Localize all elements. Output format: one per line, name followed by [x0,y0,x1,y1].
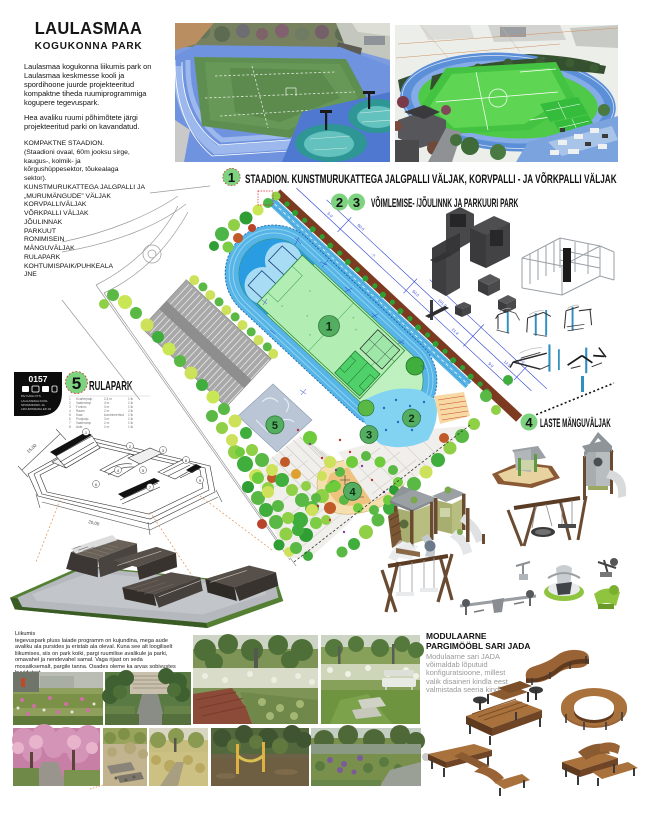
svg-text:2: 2 [408,413,414,425]
svg-text:5: 5 [72,374,81,393]
svg-text:5: 5 [272,420,278,432]
svg-text:1 tk: 1 tk [128,425,134,429]
svg-text:8: 8 [69,425,71,429]
svg-text:5.0: 5.0 [326,211,334,219]
svg-text:1: 1 [228,170,235,185]
svg-text:0157: 0157 [29,374,48,384]
svg-text:21.4: 21.4 [451,327,461,336]
svg-text:3: 3 [353,195,360,210]
svg-text:9.0: 9.0 [487,361,495,369]
svg-text:4: 4 [349,486,356,498]
svg-text:60.0: 60.0 [356,223,366,232]
svg-text:4: 4 [525,415,533,430]
svg-text:Aste: Aste [76,425,83,429]
svg-text:MV KAVA OTS: MV KAVA OTS [21,394,41,398]
svg-text:1: 1 [326,320,333,334]
svg-text:3: 3 [366,430,372,442]
svg-text:20,00: 20,00 [88,519,101,527]
svg-text:2 m: 2 m [104,425,110,429]
svg-text:2: 2 [336,195,343,210]
svg-text:LIIKUMISRADA EP-02: LIIKUMISRADA EP-02 [21,407,52,411]
svg-text:15,00: 15,00 [26,442,38,454]
